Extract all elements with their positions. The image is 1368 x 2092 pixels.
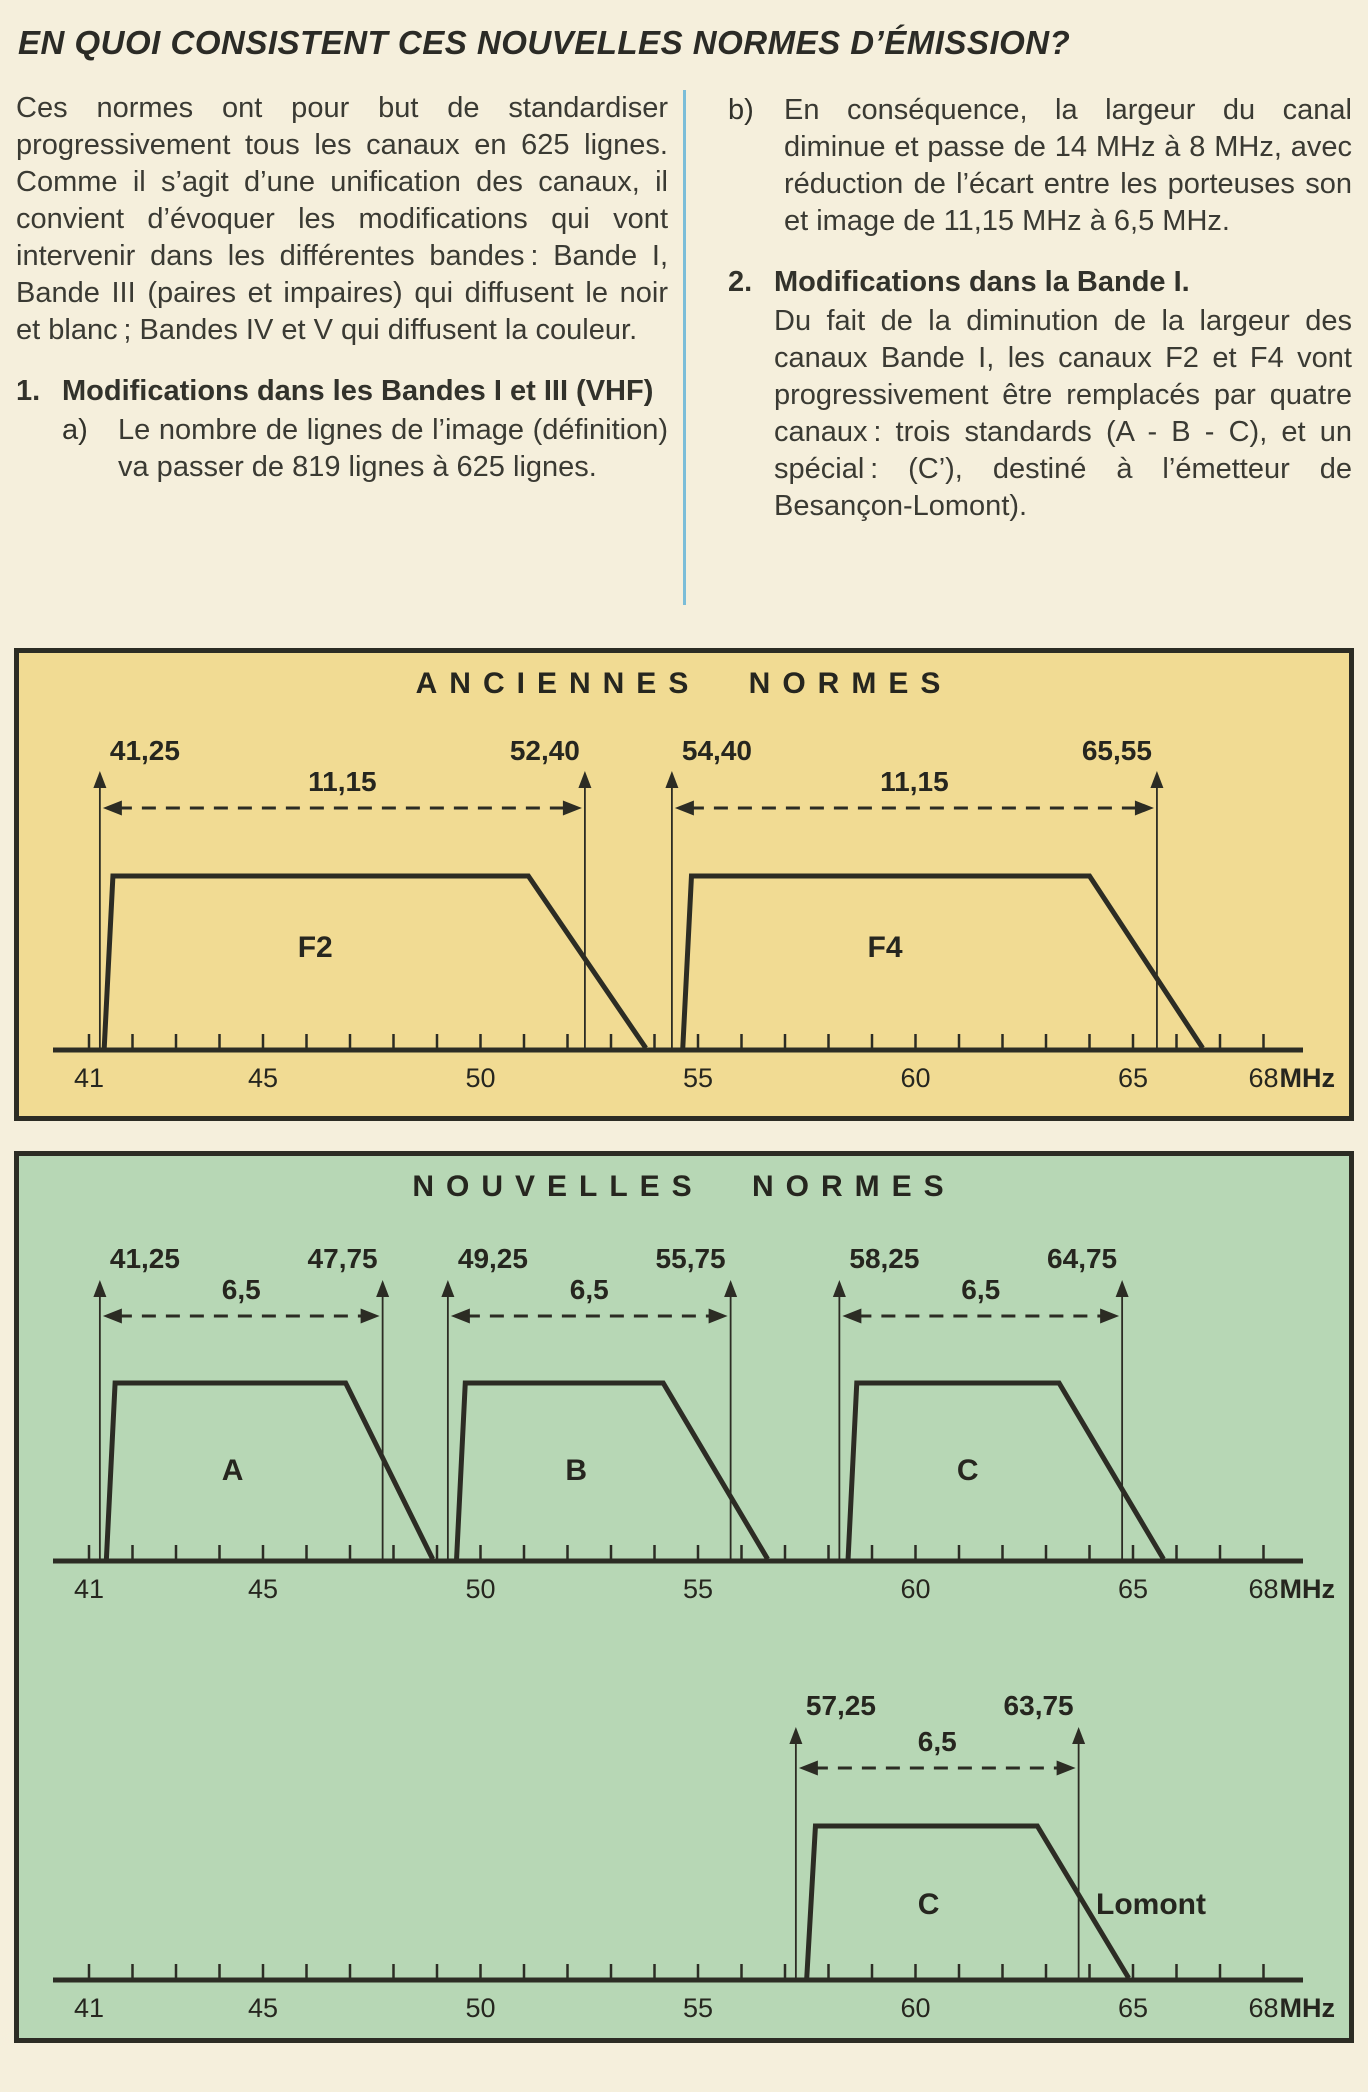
anciennes-normes-title: ANCIENNES NORMES: [19, 653, 1349, 705]
list-item-b: b) En conséquence, la largeur du canal d…: [728, 92, 1352, 240]
lomont-diagram: 41455055606568MHzCLomont57,2563,756,5: [19, 1630, 1349, 2038]
channel-shape-F2: [104, 876, 646, 1048]
list-item-2-title: Modifications dans la Bande I.: [774, 264, 1190, 301]
carrier-arrowhead: [1150, 771, 1163, 788]
measure-to-label: 64,75: [1047, 1243, 1117, 1274]
dimension-arrow-left: [103, 1309, 122, 1324]
carrier-arrowhead: [578, 771, 591, 788]
right-column: b) En conséquence, la largeur du canal d…: [683, 90, 1352, 605]
tick-label: 50: [465, 1063, 495, 1093]
measure-from-label: 41,25: [110, 735, 180, 766]
carrier-arrowhead: [1116, 1280, 1129, 1297]
list-item-2: 2. Modifications dans la Bande I.: [728, 264, 1352, 301]
anciennes-normes-panel: ANCIENNES NORMES 41455055606568MHzF2F441…: [14, 648, 1354, 1121]
axis-unit-label: MHz: [1280, 1063, 1336, 1093]
channel-label: C: [918, 1888, 940, 1921]
channel-shape-A: [106, 1383, 432, 1559]
carrier-arrowhead: [441, 1280, 454, 1297]
tick-label: 65: [1118, 1993, 1148, 2023]
carrier-arrowhead: [833, 1280, 846, 1297]
tick-label: 60: [900, 1993, 930, 2023]
anciennes-normes-diagram: 41455055606568MHzF2F441,2552,4011,1554,4…: [19, 705, 1349, 1115]
dimension-arrow-right: [1135, 801, 1154, 816]
width-label: 6,5: [961, 1274, 1000, 1305]
measure-to-label: 55,75: [656, 1243, 726, 1274]
list-item-1: 1. Modifications dans les Bandes I et II…: [16, 373, 668, 410]
carrier-arrowhead: [93, 771, 106, 788]
tick-label: 41: [74, 1574, 104, 1604]
measure-from-label: 41,25: [110, 1243, 180, 1274]
tick-label: 45: [248, 1574, 278, 1604]
tick-label: 60: [900, 1063, 930, 1093]
list-item-1-number: 1.: [16, 373, 62, 410]
tick-label: 65: [1118, 1574, 1148, 1604]
page-title: EN QUOI CONSISTENT CES NOUVELLES NORMES …: [18, 24, 1368, 62]
list-item-2-text: Du fait de la diminution de la largeur d…: [774, 303, 1352, 525]
nouvelles-normes-title: NOUVELLES NORMES: [19, 1156, 1349, 1208]
tick-label: 68: [1248, 1063, 1278, 1093]
nouvelles-normes-panel: NOUVELLES NORMES 41455055606568MHzABC41,…: [14, 1151, 1354, 2043]
tick-label: 65: [1118, 1063, 1148, 1093]
list-item-b-number: b): [728, 92, 784, 240]
measure-to-label: 52,40: [510, 735, 580, 766]
list-item-b-text: En conséquence, la largeur du canal dimi…: [784, 92, 1352, 240]
left-column: Ces normes ont pour but de standardiser …: [16, 90, 668, 605]
channel-shape-F4: [683, 876, 1203, 1048]
tick-label: 45: [248, 1993, 278, 2023]
dimension-arrow-right: [709, 1309, 728, 1324]
measure-to-label: 65,55: [1082, 735, 1152, 766]
dimension-arrow-right: [1057, 1761, 1076, 1776]
nouvelles-normes-diagram: 41455055606568MHzABC41,2547,756,549,2555…: [19, 1208, 1349, 1622]
carrier-arrowhead: [789, 1727, 802, 1744]
channel-shape-C: [807, 1826, 1129, 1978]
dimension-arrow-left: [842, 1309, 861, 1324]
width-label: 11,15: [880, 766, 949, 797]
axis-unit-label: MHz: [1280, 1993, 1336, 2023]
list-item-2-number: 2.: [728, 264, 774, 301]
measure-from-label: 49,25: [458, 1243, 528, 1274]
tick-label: 55: [683, 1063, 713, 1093]
channel-label: B: [565, 1454, 587, 1487]
tick-label: 45: [248, 1063, 278, 1093]
tick-label: 68: [1248, 1993, 1278, 2023]
tick-label: 55: [683, 1574, 713, 1604]
channel-label: C: [957, 1454, 979, 1487]
carrier-arrowhead: [724, 1280, 737, 1297]
dimension-arrow-left: [799, 1761, 818, 1776]
tick-label: 50: [465, 1574, 495, 1604]
axis-unit-label: MHz: [1280, 1574, 1336, 1604]
channel-label: A: [222, 1454, 244, 1487]
dimension-arrow-left: [451, 1309, 470, 1324]
channel-shape-B: [457, 1383, 768, 1559]
tick-label: 68: [1248, 1574, 1278, 1604]
list-item-1a-number: a): [62, 412, 118, 486]
list-item-1a-text: Le nombre de lignes de l’image (définiti…: [118, 412, 668, 486]
measure-from-label: 57,25: [806, 1690, 876, 1721]
carrier-arrowhead: [1072, 1727, 1085, 1744]
dimension-arrow-left: [103, 801, 122, 816]
magazine-page: EN QUOI CONSISTENT CES NOUVELLES NORMES …: [0, 0, 1368, 2092]
carrier-arrowhead: [93, 1280, 106, 1297]
dimension-arrow-left: [675, 801, 694, 816]
measure-to-label: 63,75: [1004, 1690, 1074, 1721]
channel-shape-C: [848, 1383, 1163, 1559]
width-label: 6,5: [570, 1274, 609, 1305]
list-item-1a: a) Le nombre de lignes de l’image (défin…: [62, 412, 668, 486]
tick-label: 55: [683, 1993, 713, 2023]
dimension-arrow-right: [1100, 1309, 1119, 1324]
width-label: 6,5: [222, 1274, 261, 1305]
channel-side-label: Lomont: [1096, 1888, 1206, 1921]
carrier-arrowhead: [665, 771, 678, 788]
measure-to-label: 47,75: [308, 1243, 378, 1274]
list-item-1-title: Modifications dans les Bandes I et III (…: [62, 373, 653, 410]
tick-label: 41: [74, 1063, 104, 1093]
tick-label: 41: [74, 1993, 104, 2023]
measure-from-label: 58,25: [849, 1243, 919, 1274]
channel-label: F4: [868, 931, 903, 964]
width-label: 11,15: [308, 766, 377, 797]
intro-paragraph: Ces normes ont pour but de standardiser …: [16, 90, 668, 349]
dimension-arrow-right: [563, 801, 582, 816]
tick-label: 50: [465, 1993, 495, 2023]
width-label: 6,5: [918, 1726, 957, 1757]
tick-label: 60: [900, 1574, 930, 1604]
carrier-arrowhead: [376, 1280, 389, 1297]
text-columns: Ces normes ont pour but de standardiser …: [16, 90, 1352, 605]
measure-from-label: 54,40: [682, 735, 752, 766]
dimension-arrow-right: [361, 1309, 380, 1324]
channel-label: F2: [298, 931, 333, 964]
